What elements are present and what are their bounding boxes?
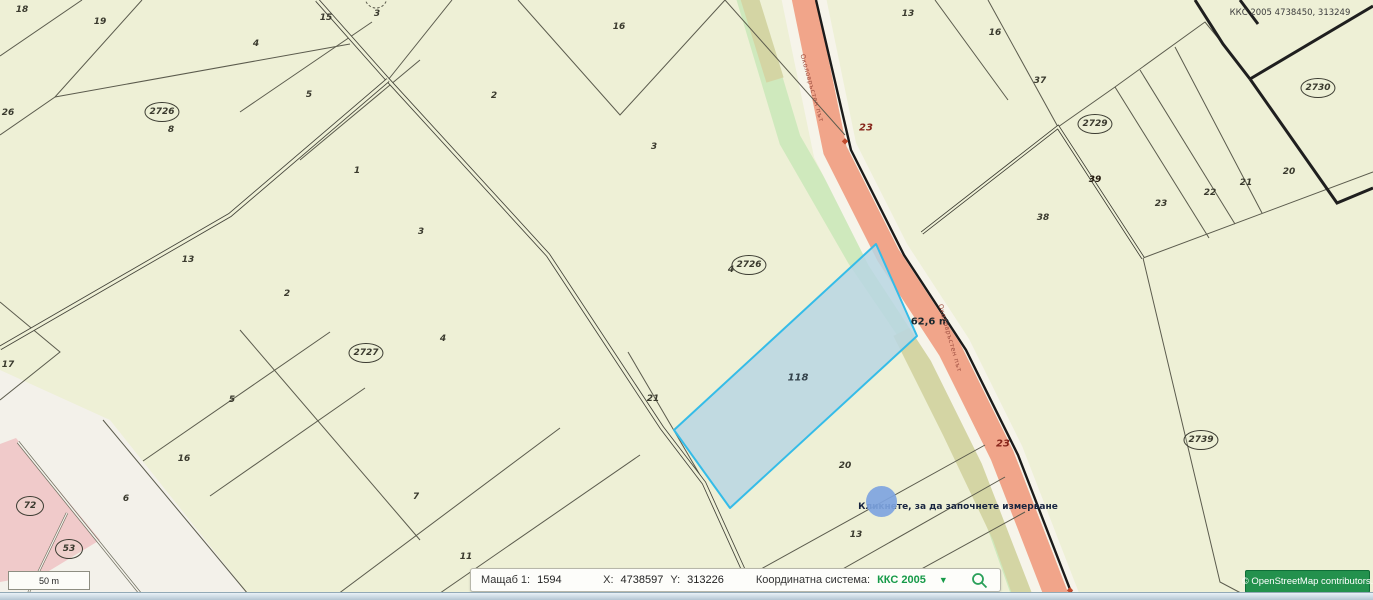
parcel-label: ККС 2005 4738450, 313249 <box>1230 8 1351 18</box>
parcel-label: Околовръстен път <box>798 53 825 123</box>
parcel-label: 20 <box>1283 167 1296 177</box>
crs-label: Координатна система: <box>756 574 870 586</box>
status-bar: Мащаб 1: 1594 X: 4738597 Y: 313226 Коорд… <box>470 568 1001 592</box>
parcel-label: 3 <box>374 9 380 19</box>
map-container[interactable]: 1819153262726845121631323272745171667253… <box>0 0 1373 600</box>
parcel-label: 21 <box>647 394 660 404</box>
x-coordinate-label: X: <box>603 574 613 586</box>
parcel-label: 39 <box>1089 175 1102 185</box>
circled-parcel-label: 2730 <box>1300 78 1335 98</box>
circled-parcel-label: 53 <box>55 539 83 559</box>
osm-attribution-text: © OpenStreetMap contributors. <box>1242 576 1373 587</box>
parcel-label: 16 <box>613 22 626 32</box>
osm-attribution[interactable]: © OpenStreetMap contributors. <box>1245 570 1370 593</box>
circled-parcel-label: 2726 <box>144 102 179 122</box>
parcel-label: 5 <box>229 395 235 405</box>
parcel-label: 7 <box>413 492 419 502</box>
parcel-label: 38 <box>1037 213 1050 223</box>
crs-dropdown[interactable]: ККС 2005 <box>877 574 926 586</box>
parcel-label: 8 <box>168 125 174 135</box>
y-coordinate-label: Y: <box>670 574 680 586</box>
parcel-label: 22 <box>1204 188 1217 198</box>
scale-value-input[interactable]: 1594 <box>537 574 571 586</box>
circled-parcel-label: 72 <box>16 496 44 516</box>
measure-start-dot[interactable] <box>866 486 897 517</box>
parcel-label: 6 <box>123 494 129 504</box>
parcel-label: 16 <box>178 454 191 464</box>
parcel-label: 4 <box>728 265 734 275</box>
circled-parcel-label: 2726 <box>731 255 766 275</box>
parcel-label: 118 <box>788 373 809 384</box>
chevron-down-icon[interactable]: ▼ <box>939 575 948 585</box>
parcel-label: 17 <box>2 360 15 370</box>
circled-parcel-label: 2739 <box>1183 430 1218 450</box>
parcel-label: 62,6 m <box>911 317 950 328</box>
parcel-label: 20 <box>839 461 852 471</box>
map-labels: 1819153262726845121631323272745171667253… <box>0 0 1373 600</box>
parcel-label: 2 <box>284 289 290 299</box>
parcel-label: 21 <box>1240 178 1253 188</box>
parcel-label: 5 <box>306 90 312 100</box>
parcel-label: 3 <box>651 142 657 152</box>
parcel-label: 16 <box>989 28 1002 38</box>
window-edge <box>0 592 1373 600</box>
parcel-label: 3 <box>418 227 424 237</box>
parcel-label: 37 <box>1034 76 1047 86</box>
parcel-label: 23 <box>859 123 873 134</box>
parcel-label: Околовръстен път <box>936 303 963 373</box>
circled-parcel-label: 2727 <box>348 343 383 363</box>
parcel-label: 19 <box>94 17 107 27</box>
parcel-label: 11 <box>460 552 473 562</box>
scale-bar: 50 m <box>8 571 90 590</box>
parcel-label: 18 <box>16 5 29 15</box>
parcel-label: 15 <box>320 13 333 23</box>
search-icon <box>971 572 988 589</box>
parcel-label: 13 <box>182 255 195 265</box>
scale-label: Мащаб 1: <box>481 574 530 586</box>
circled-parcel-label: 2729 <box>1077 114 1112 134</box>
search-button[interactable] <box>970 570 990 590</box>
parcel-label: 23 <box>1155 199 1168 209</box>
parcel-label: 2 <box>491 91 497 101</box>
parcel-label: 26 <box>2 108 15 118</box>
parcel-label: 13 <box>902 9 915 19</box>
scale-bar-label: 50 m <box>39 576 59 586</box>
parcel-label: 1 <box>354 166 360 176</box>
parcel-label: 4 <box>253 39 259 49</box>
parcel-label: 23 <box>996 439 1010 450</box>
parcel-label: 4 <box>440 334 446 344</box>
parcel-label: 13 <box>850 530 863 540</box>
x-coordinate-value: 4738597 <box>621 574 664 586</box>
y-coordinate-value: 313226 <box>687 574 724 586</box>
